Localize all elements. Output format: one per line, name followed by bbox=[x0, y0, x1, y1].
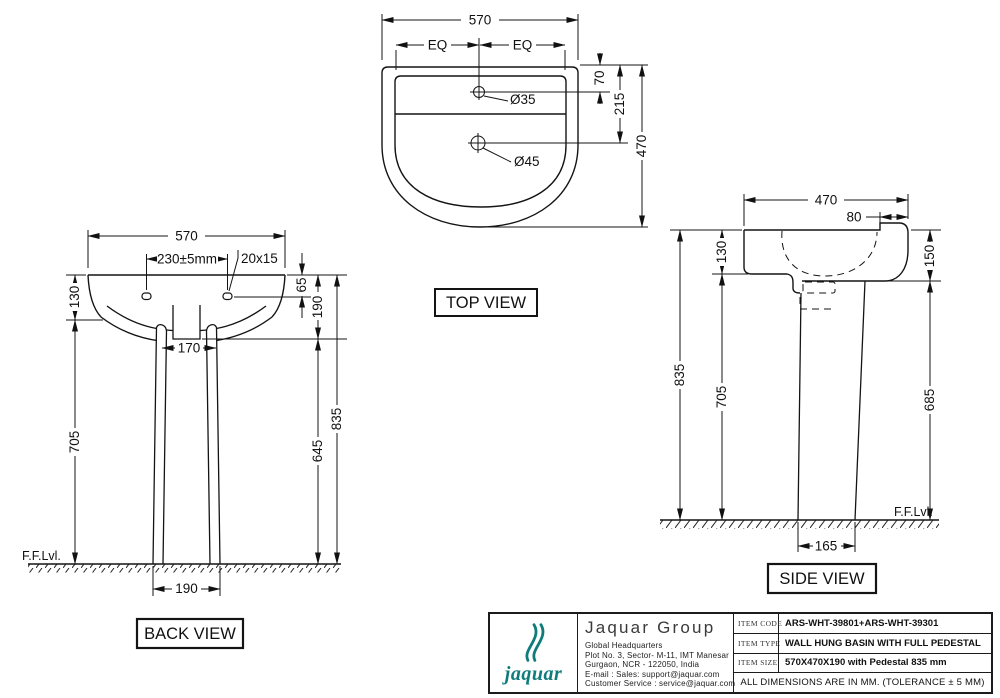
side-view-bowl-hidden-lines bbox=[782, 231, 877, 309]
dim-side-depth: 470 bbox=[815, 193, 838, 208]
item-size-label: ITEM SIZE bbox=[734, 654, 779, 673]
side-view-extension-lines bbox=[670, 194, 941, 552]
side-view-pedestal bbox=[798, 281, 865, 520]
dim-fixing-hole-size: 20x15 bbox=[241, 251, 278, 266]
pedestal-legs bbox=[153, 325, 220, 564]
side-view-label: SIDE VIEW bbox=[779, 570, 865, 588]
dim-front-underside-height: 685 bbox=[922, 389, 937, 412]
dim-pedestal-inner-width: 170 bbox=[178, 341, 201, 356]
dim-top-eq-right: EQ bbox=[513, 38, 533, 53]
side-view-basin-outline bbox=[744, 223, 908, 293]
dim-back-underside-height: 705 bbox=[67, 431, 82, 454]
dim-pedestal-base-width: 190 bbox=[175, 581, 198, 596]
pedestal-column-mask bbox=[174, 305, 200, 339]
dim-pedestal-base-depth: 165 bbox=[815, 539, 838, 554]
item-table: ITEM CODE ARS-WHT-39801+ARS-WHT-39301 IT… bbox=[734, 614, 991, 692]
item-size-value: 570X470X190 with Pedestal 835 mm bbox=[779, 654, 991, 673]
dim-fixing-hole-drop: 65 bbox=[294, 277, 309, 292]
side-view-label-masks bbox=[673, 193, 937, 553]
dim-back-overall-height: 835 bbox=[329, 408, 344, 431]
top-view-basin-outline bbox=[382, 67, 578, 227]
jaquar-logo-icon bbox=[520, 623, 548, 663]
address-line: Customer Service : service@jaquar.com bbox=[585, 679, 733, 689]
title-block: jaquar Jaquar Group Global Headquarters … bbox=[488, 612, 993, 694]
dim-back-rim-drop: 130 bbox=[67, 286, 82, 309]
side-view-ground bbox=[660, 520, 939, 529]
dim-basin-depth: 190 bbox=[310, 296, 325, 319]
dim-drain-offset: 215 bbox=[612, 93, 627, 116]
dim-drain-hole: Ø45 bbox=[514, 154, 540, 169]
back-view-label: BACK VIEW bbox=[144, 625, 236, 643]
item-code-value: ARS-WHT-39801+ARS-WHT-39301 bbox=[779, 614, 991, 633]
item-type-value: WALL HUNG BASIN WITH FULL PEDESTAL bbox=[779, 634, 991, 653]
company-name: Jaquar Group bbox=[585, 618, 733, 638]
item-code-row: ITEM CODE ARS-WHT-39801+ARS-WHT-39301 bbox=[734, 614, 991, 634]
side-view: 470 80 130 150 835 705 685 165 F.F.Lvl. … bbox=[660, 193, 941, 594]
technical-drawing-page: { "drawing": { "top_view": { "label": "T… bbox=[0, 0, 1000, 698]
address-line: Plot No. 3, Sector- M-11, IMT Manesar bbox=[585, 651, 733, 661]
item-code-label: ITEM CODE bbox=[734, 614, 779, 633]
dim-pedestal-height: 645 bbox=[310, 440, 325, 463]
back-view: 570 230±5mm 20x15 130 65 190 170 705 645… bbox=[22, 229, 347, 649]
dim-side-rim-drop-back: 130 bbox=[714, 241, 729, 264]
side-floor-level-label: F.F.Lvl. bbox=[894, 505, 933, 519]
tolerance-note: ALL DIMENSIONS ARE IN MM. (TOLERANCE ± 5… bbox=[734, 673, 991, 692]
dim-side-underside-height: 705 bbox=[714, 386, 729, 409]
item-type-row: ITEM TYPE WALL HUNG BASIN WITH FULL PEDE… bbox=[734, 634, 991, 654]
drawing-canvas: 570 EQ EQ Ø35 Ø45 70 215 470 TOP VIEW bbox=[0, 0, 1000, 698]
dim-top-depth: 470 bbox=[634, 135, 649, 158]
dim-top-eq-left: EQ bbox=[428, 38, 448, 53]
back-view-ground bbox=[28, 564, 341, 573]
dim-faucet-hole: Ø35 bbox=[510, 92, 536, 107]
back-floor-level-label: F.F.Lvl. bbox=[22, 549, 61, 563]
item-size-row: ITEM SIZE 570X470X190 with Pedestal 835 … bbox=[734, 654, 991, 674]
top-view: 570 EQ EQ Ø35 Ø45 70 215 470 TOP VIEW bbox=[382, 13, 649, 317]
address-line: Gurgaon, NCR - 122050, India bbox=[585, 660, 733, 670]
top-view-label-masks bbox=[424, 13, 649, 160]
dim-fixing-hole-centers: 230±5mm bbox=[157, 252, 217, 267]
top-view-label: TOP VIEW bbox=[446, 294, 527, 312]
jaquar-wordmark: jaquar bbox=[505, 664, 562, 684]
company-cell: Jaquar Group Global Headquarters Plot No… bbox=[578, 614, 734, 692]
dim-front-rim: 80 bbox=[846, 210, 861, 225]
jaquar-logo: jaquar bbox=[490, 614, 578, 692]
dim-faucet-offset: 70 bbox=[592, 70, 607, 85]
item-type-label: ITEM TYPE bbox=[734, 634, 779, 653]
fixing-holes bbox=[142, 293, 232, 300]
dim-top-width: 570 bbox=[469, 13, 492, 28]
address-line: E-mail : Sales: support@jaquar.com bbox=[585, 670, 733, 680]
dim-back-width: 570 bbox=[175, 229, 198, 244]
dim-side-rim-drop-front: 150 bbox=[922, 245, 937, 268]
dim-side-overall-height: 835 bbox=[672, 364, 687, 387]
address-line: Global Headquarters bbox=[585, 641, 733, 651]
